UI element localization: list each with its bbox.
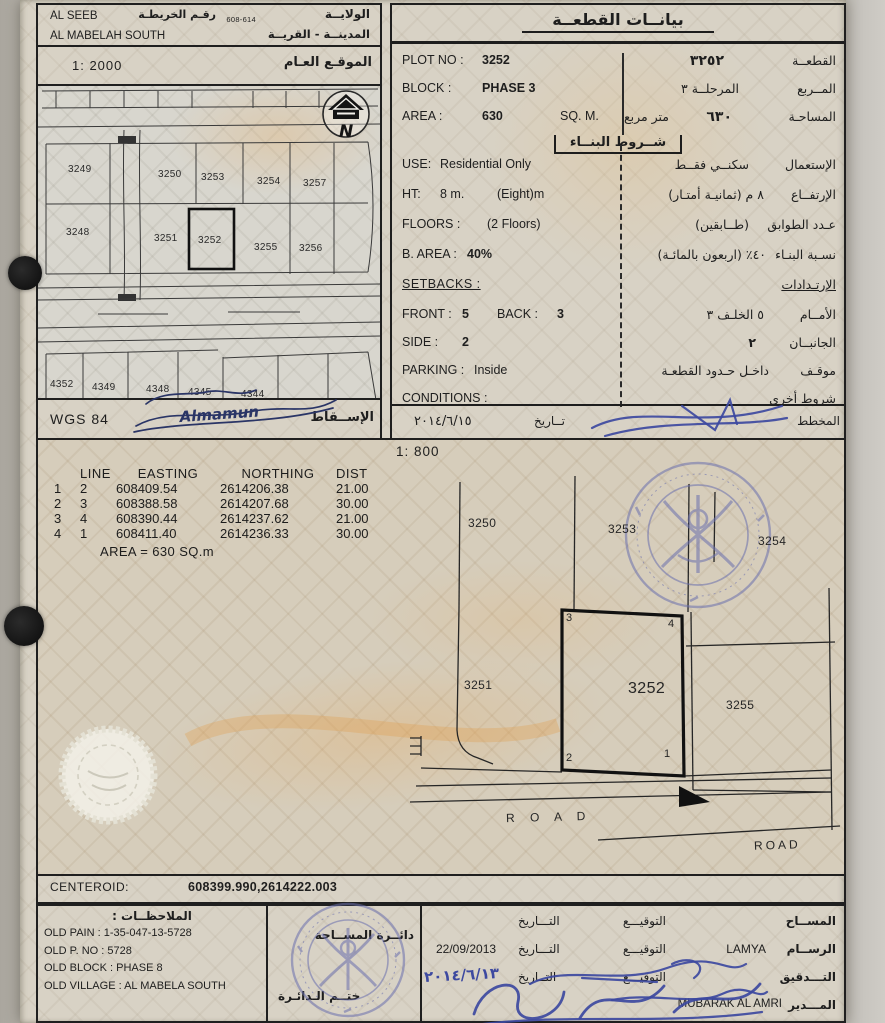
built-area-label: B. AREA : — [402, 247, 457, 261]
paper-sheet: AL SEEB 608-614 رقـم الخريطـة الولايــة … — [20, 0, 846, 1023]
setbacks-label-ar: الإرتـدادات — [781, 277, 836, 292]
ov-plot-3248: 3248 — [66, 227, 89, 238]
built-area-value-ar: ٤٠٪ (اربعون بالمائـة) — [658, 247, 766, 262]
mm-plot-3250: 3250 — [468, 516, 496, 530]
centeroid-label: CENTEROID: — [50, 880, 129, 894]
draftsman-date-label: التـــاريخ — [518, 942, 560, 956]
use-label: USE: — [402, 157, 431, 171]
ov-plot-3252: 3252 — [198, 235, 221, 246]
ov-plot-3253: 3253 — [201, 172, 224, 183]
north-arrow-icon: N — [318, 88, 374, 148]
notes-box: الملاحظــات : OLD PAIN : 1-35-047-13-572… — [36, 904, 268, 1023]
side-row: SIDE : 2 ٢ الجانبــان — [392, 335, 844, 359]
ov-plot-3255: 3255 — [254, 242, 277, 253]
surveyor-sig-label: التوقيـــع — [623, 914, 666, 928]
ov-plot-3256: 3256 — [299, 243, 322, 254]
plot-data-title-bar: بيانــات القطعــة — [392, 5, 844, 44]
coords-area-note: AREA = 630 SQ.m — [54, 544, 392, 559]
use-value-ar: سكنــي فقــط — [675, 157, 749, 172]
height-label-ar: الإرتفــاع — [791, 187, 836, 202]
use-label-ar: الإستعمال — [785, 157, 836, 172]
side-value-ar: ٢ — [748, 335, 756, 350]
note-line: OLD PAIN : 1-35-047-13-5728 — [44, 925, 266, 943]
road-label-2: ROAD — [754, 837, 801, 853]
height-label: HT: — [402, 187, 421, 201]
height-value: 8 m. — [440, 187, 464, 201]
hole-punch — [4, 606, 44, 646]
coordinates-table: LINEEASTINGNORTHINGDIST 12608409.5426142… — [54, 466, 392, 559]
mm-plot-3252: 3252 — [628, 680, 665, 698]
signoff-box: المســاح التوقيـــع التـــاريخ الرســام … — [420, 904, 846, 1023]
coords-row: 34608390.442614237.6221.00 — [54, 511, 392, 526]
overview-map: N 3249 3250 3253 3254 3257 3248 3251 325… — [36, 84, 382, 400]
block-label: BLOCK : — [402, 81, 451, 95]
centeroid-row: CENTEROID: 608399.990,2614222.003 — [36, 874, 846, 904]
ov-plot-4352: 4352 — [50, 379, 73, 390]
ov-plot-3254: 3254 — [257, 176, 280, 187]
side-label: SIDE : — [402, 335, 438, 349]
front-label-ar: الأمــام — [800, 307, 836, 322]
height-note: (Eight)m — [497, 187, 544, 201]
conditions-label: CONDITIONS : — [402, 391, 487, 405]
note-line: OLD BLOCK : PHASE 8 — [44, 960, 266, 978]
north-letter: N — [339, 122, 353, 142]
director-role: المـــدير — [788, 998, 836, 1012]
use-value: Residential Only — [440, 157, 531, 171]
area-label-ar: المساحـة — [788, 109, 836, 124]
building-conditions-title: شــروط البنــاء — [392, 133, 844, 154]
built-area-value: 40% — [467, 247, 492, 261]
floors-value: (2 Floors) — [487, 217, 540, 231]
block-value-ar: المرحلــة ٣ — [681, 81, 739, 96]
use-row: USE: Residential Only سكنــي فقــط الإست… — [392, 157, 844, 181]
plot-no-row: PLOT NO : 3252 ٣٢٥٢ القطعــة — [392, 53, 844, 77]
wilaya-value: AL SEEB — [50, 10, 98, 22]
parking-label-ar: موقـف — [800, 363, 836, 378]
front-back-row: FRONT : 5 BACK : 3 ٥ الخلـف ٣ الأمــام — [392, 307, 844, 331]
area-label: AREA : — [402, 109, 442, 123]
audit-role: التـــدقيق — [780, 970, 836, 984]
director-name: MUBARAK AL AMRI — [678, 998, 782, 1010]
map-number-value: 608-614 — [226, 15, 256, 24]
hole-punch — [8, 256, 42, 290]
ov-plot-3249: 3249 — [68, 164, 91, 175]
parking-value-ar: داخـل حـدود القطعـة — [661, 363, 769, 378]
plot-no-value-ar: ٣٢٥٢ — [690, 53, 724, 69]
plot-data-date-row: ٢٠١٤/٦/١٥ تــاريخ المخطط — [392, 404, 844, 442]
planner-label: المخطط — [797, 414, 840, 428]
audit-date-label: التــاريخ — [518, 970, 556, 984]
audit-date-handwritten: ٢٠١٤/٦/١٣ — [424, 964, 500, 986]
wilaya-label-ar: الولايــة — [325, 7, 370, 21]
side-value: 2 — [462, 335, 469, 349]
area-value: 630 — [482, 109, 503, 123]
block-value: PHASE 3 — [482, 81, 536, 95]
area-row: AREA : 630 SQ. M. متر مربع ٦٣٠ المساحـة — [392, 109, 844, 133]
corner-4: 4 — [668, 618, 675, 630]
floors-label: FLOORS : — [402, 217, 460, 231]
overview-title-ar: الموقـع العـام — [284, 55, 372, 70]
plot-no-value: 3252 — [482, 53, 510, 67]
signature-name: Almamun — [178, 402, 260, 426]
setbacks-row: SETBACKS : الإرتـدادات — [392, 277, 844, 301]
setbacks-label: SETBACKS : — [402, 277, 481, 291]
floors-row: FLOORS : (2 Floors) (طــابقين) عـدد الطو… — [392, 217, 844, 241]
floors-label-ar: عـدد الطوابق — [767, 217, 836, 232]
mm-plot-3251: 3251 — [464, 678, 492, 692]
height-value-ar: ٨ م (ثمانيـة أمتـار) — [668, 187, 764, 202]
village-label-ar: المدينــة - القريــة — [268, 27, 370, 41]
department-round-stamp — [268, 894, 424, 1023]
overview-scale: 1: 2000 — [72, 58, 122, 73]
coords-row: 23608388.582614207.6830.00 — [54, 496, 392, 511]
main-map-scale: 1: 800 — [396, 444, 440, 459]
village-value: AL MABELAH SOUTH — [50, 30, 165, 42]
column-divider — [622, 53, 624, 135]
parking-label: PARKING : — [402, 363, 464, 377]
centeroid-value: 608399.990,2614222.003 — [188, 880, 337, 894]
department-seal-box: دائــرة المســاحة ختــم الـدائـرة — [266, 904, 422, 1023]
col-line: LINE — [80, 466, 116, 481]
corner-1: 1 — [664, 748, 671, 760]
notes-title: الملاحظــات : — [38, 909, 266, 923]
projection-label-ar: الإســقاط — [310, 410, 374, 425]
ov-plot-3251: 3251 — [154, 233, 177, 244]
corner-2: 2 — [566, 752, 573, 764]
surveyor-role: المســاح — [786, 914, 836, 928]
mm-plot-3255: 3255 — [726, 698, 754, 712]
height-row: HT: 8 m. (Eight)m ٨ م (ثمانيـة أمتـار) ا… — [392, 187, 844, 211]
floors-value-ar: (طــابقين) — [695, 217, 749, 232]
director-row: المـــدير MUBARAK AL AMRI — [422, 998, 844, 1023]
plot-no-label-ar: القطعــة — [792, 53, 836, 68]
back-value: 3 — [557, 307, 564, 321]
front-label: FRONT : — [402, 307, 452, 321]
note-line: OLD P. NO : 5728 — [44, 943, 266, 961]
coords-header-row: LINEEASTINGNORTHINGDIST — [54, 466, 392, 481]
back-label: BACK : — [497, 307, 538, 321]
mm-plot-3253: 3253 — [608, 522, 636, 536]
plan-date-label: تــاريخ — [534, 414, 565, 428]
coords-row: 41608411.402614236.3330.00 — [54, 526, 392, 541]
draftsman-date: 22/09/2013 — [436, 942, 496, 956]
road-label-1: R O A D — [506, 809, 592, 825]
parking-row: PARKING : Inside داخـل حـدود القطعـة موق… — [392, 363, 844, 387]
block-label-ar: المــربع — [797, 81, 836, 96]
ov-plot-3250: 3250 — [158, 169, 181, 180]
audit-sig-label: التوقيـــع — [623, 970, 666, 984]
plot-data-box: بيانــات القطعــة PLOT NO : 3252 ٣٢٥٢ ال… — [390, 3, 846, 440]
main-map: 1: 800 LINEEASTINGNORTHINGDIST 12608409.… — [36, 438, 846, 876]
corner-3: 3 — [566, 612, 573, 624]
note-line: OLD VILLAGE : AL MABELA SOUTH — [44, 978, 266, 996]
draftsman-role: الرســام — [787, 942, 836, 956]
front-value: 5 — [462, 307, 469, 321]
col-northing: NORTHING — [220, 466, 336, 481]
projection-row: WGS 84 الإســقاط Almamun — [36, 398, 382, 440]
ov-plot-4349: 4349 — [92, 382, 115, 393]
block-row: BLOCK : PHASE 3 المرحلــة ٣ المــربع — [392, 81, 844, 105]
overview-scale-row: 1: 2000 الموقـع العـام — [36, 45, 382, 86]
surveyor-row: المســاح التوقيـــع التـــاريخ — [422, 914, 844, 940]
built-area-label-ar: نسـبة البنـاء — [775, 247, 836, 262]
area-unit: SQ. M. — [560, 109, 599, 123]
map-number-label-ar: رقـم الخريطـة — [138, 8, 216, 21]
scanned-plot-document: AL SEEB 608-614 رقـم الخريطـة الولايــة … — [0, 0, 885, 1023]
parking-value: Inside — [474, 363, 507, 377]
datum-value: WGS 84 — [50, 411, 109, 427]
draftsman-name: LAMYA — [726, 942, 766, 956]
draftsman-sig-label: التوقيـــع — [623, 942, 666, 956]
front-back-value-ar: ٥ الخلـف ٣ — [707, 307, 764, 322]
surveyor-date-label: التـــاريخ — [518, 914, 560, 928]
coords-row: 12608409.542614206.3821.00 — [54, 481, 392, 496]
side-label-ar: الجانبــان — [789, 335, 836, 350]
plot-no-label: PLOT NO : — [402, 53, 464, 67]
plan-date: ٢٠١٤/٦/١٥ — [414, 414, 472, 429]
plot-data-title: بيانــات القطعــة — [522, 10, 713, 33]
mm-plot-3254: 3254 — [758, 534, 786, 548]
ov-plot-4348: 4348 — [146, 384, 169, 395]
col-easting: EASTING — [116, 466, 220, 481]
ov-plot-4345: 4345 — [188, 387, 211, 398]
col-dist: DIST — [336, 466, 392, 481]
audit-row: التـــدقيق التوقيـــع التــاريخ ٢٠١٤/٦/١… — [422, 970, 844, 996]
area-value-ar: ٦٣٠ — [706, 109, 732, 125]
ov-plot-3257: 3257 — [303, 178, 326, 189]
built-area-row: B. AREA : 40% ٤٠٪ (اربعون بالمائـة) نسـب… — [392, 247, 844, 271]
area-unit-ar: متر مربع — [624, 109, 669, 124]
header-location-box: AL SEEB 608-614 رقـم الخريطـة الولايــة … — [36, 3, 382, 47]
